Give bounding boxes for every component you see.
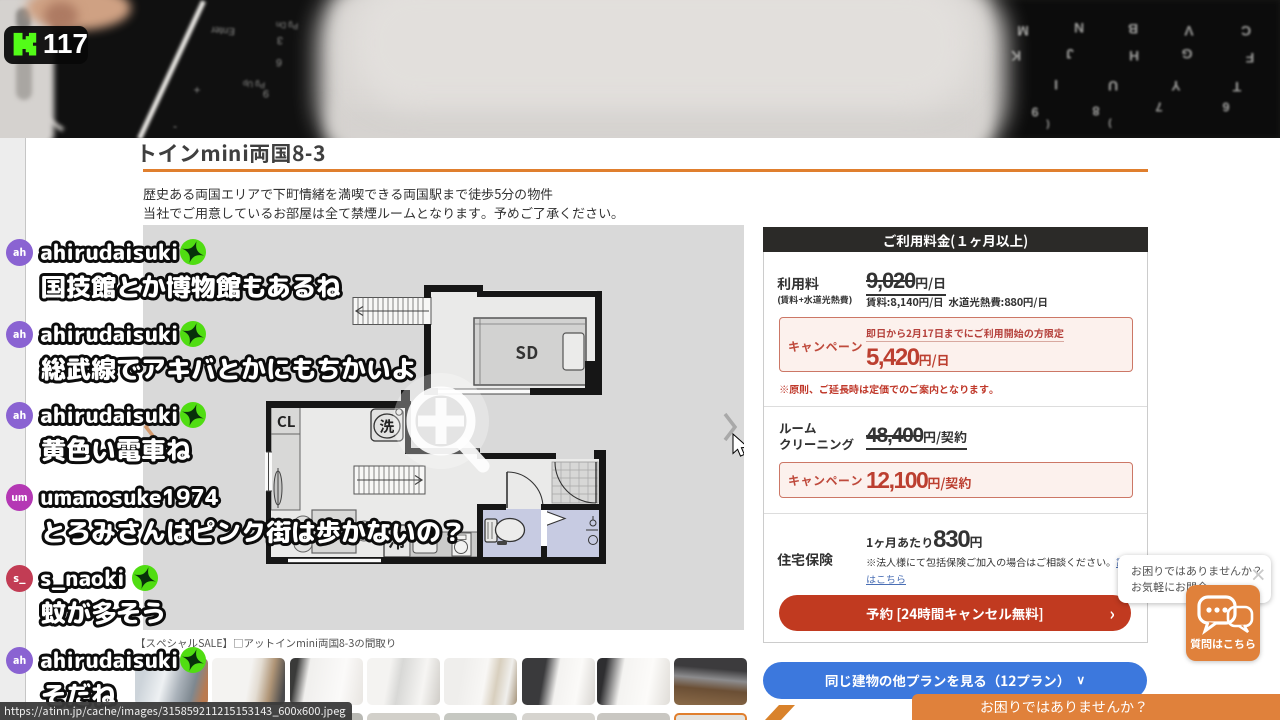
svg-text:SD: SD [516,339,539,364]
svg-text:CL: CL [277,411,296,432]
svg-text:質問はこちら: 質問はこちら [1190,636,1256,652]
